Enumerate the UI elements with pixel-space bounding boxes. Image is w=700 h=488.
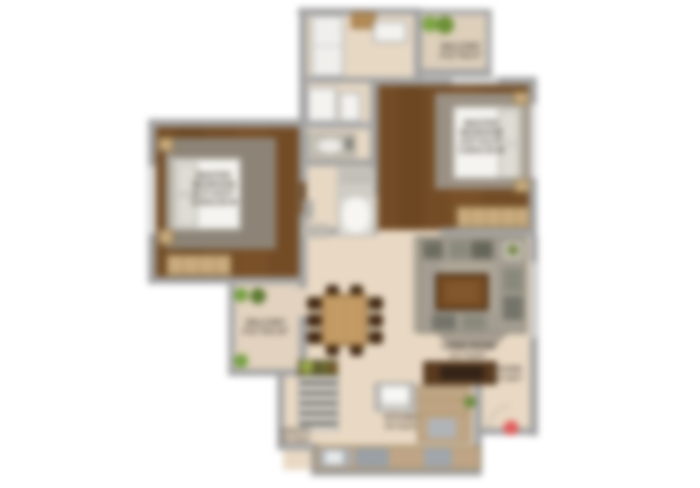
svg-text:BALCONY: BALCONY bbox=[246, 318, 286, 327]
svg-text:8'0"X10'0": 8'0"X10'0" bbox=[385, 424, 419, 431]
svg-text:3.05X3.35 M: 3.05X3.35 M bbox=[458, 146, 504, 155]
svg-text:3.35X3.05 M: 3.35X3.05 M bbox=[191, 198, 237, 207]
svg-text:11'0"X10'0": 11'0"X10'0" bbox=[193, 189, 236, 198]
svg-text:13'1"X10'6": 13'1"X10'6" bbox=[449, 353, 487, 360]
svg-text:FOYER: FOYER bbox=[494, 365, 522, 374]
svg-text:4'11"X11'10": 4'11"X11'10" bbox=[243, 327, 290, 336]
svg-text:4'0"X8'0": 4'0"X8'0" bbox=[493, 376, 523, 383]
svg-text:UTILITY: UTILITY bbox=[281, 427, 312, 436]
svg-text:MASTER: MASTER bbox=[197, 171, 231, 180]
svg-text:BEDROOM: BEDROOM bbox=[193, 180, 235, 189]
svg-text:10'0"X11'0": 10'0"X11'0" bbox=[460, 137, 503, 146]
svg-text:4'11"X11'2": 4'11"X11'2" bbox=[440, 51, 483, 60]
svg-text:BEDROOM: BEDROOM bbox=[460, 128, 502, 137]
svg-text:3'0"X4'0": 3'0"X4'0" bbox=[281, 437, 311, 444]
svg-text:BALCONY: BALCONY bbox=[441, 42, 481, 51]
svg-text:KITCHEN: KITCHEN bbox=[384, 413, 420, 422]
svg-text:LIVING ROOM: LIVING ROOM bbox=[441, 342, 495, 351]
svg-text:MASTER: MASTER bbox=[464, 119, 498, 128]
